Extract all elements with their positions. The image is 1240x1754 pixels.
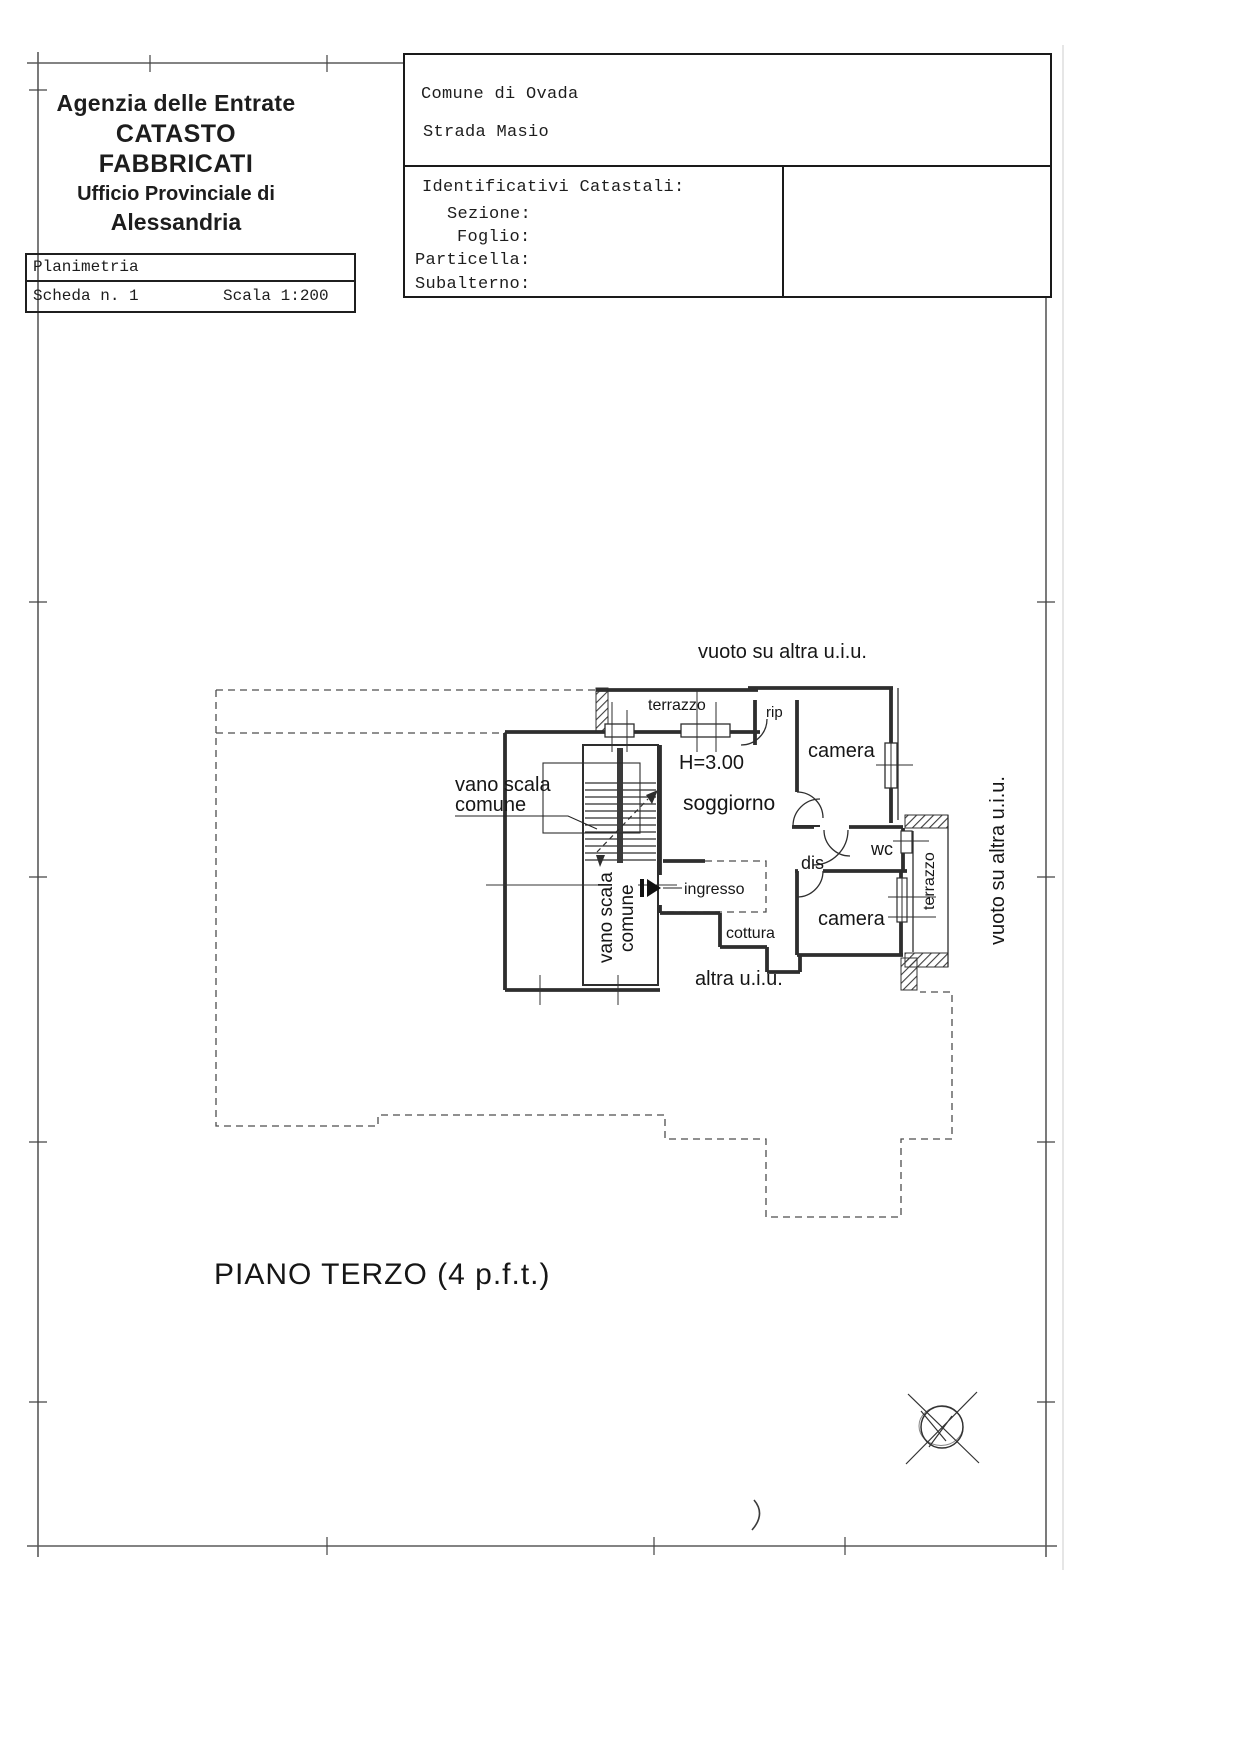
label-vuoto-top: vuoto su altra u.i.u.	[698, 641, 867, 663]
label-cottura: cottura	[726, 925, 775, 942]
stamp-cross-circle	[906, 1392, 979, 1464]
agency-register-title: CATASTO FABBRICATI	[40, 120, 312, 179]
entrance-marker	[640, 879, 682, 897]
street-line: Strada Masio	[423, 123, 549, 142]
label-vano-scala-vertical-line1: vano scala	[596, 872, 617, 963]
cadastral-floorplan-sheet: vuoto su altra u.i.u. terrazzo rip camer…	[0, 0, 1240, 1754]
agency-name: Agenzia delle Entrate	[40, 90, 312, 117]
label-vano-scala-vertical-line2: comune	[617, 884, 638, 952]
label-height: H=3.00	[679, 752, 744, 774]
planimetria-sheet-row: Scheda n. 1 Scala 1:200	[27, 282, 354, 313]
field-sezione: Sezione:	[447, 205, 531, 224]
field-subalterno: Subalterno:	[415, 275, 531, 294]
planimetria-card: Planimetria Scheda n. 1 Scala 1:200	[25, 253, 356, 313]
sheet-number: Scheda n. 1	[33, 287, 139, 305]
label-vano-scala-line2: comune	[455, 794, 526, 816]
pen-mark	[752, 1500, 760, 1530]
label-rip: rip	[766, 704, 783, 721]
agency-province: Alessandria	[40, 209, 312, 236]
label-terrazzo-top: terrazzo	[648, 697, 706, 714]
planimetria-title-row: Planimetria	[27, 255, 354, 282]
info-box-vertical-divider	[782, 167, 784, 296]
label-camera-bottom: camera	[818, 908, 886, 930]
comune-line: Comune di Ovada	[421, 85, 579, 104]
location-section: Comune di Ovada Strada Masio	[405, 55, 1050, 167]
floor-title: PIANO TERZO (4 p.f.t.)	[214, 1258, 551, 1291]
field-foglio: Foglio:	[457, 228, 531, 247]
field-particella: Particella:	[415, 251, 531, 270]
planimetria-title: Planimetria	[33, 258, 139, 276]
label-dis: dis	[801, 853, 824, 873]
label-vuoto-right: vuoto su altra u.i.u.	[987, 776, 1009, 945]
vano-scala-leader-line	[455, 816, 597, 829]
label-altra-uiu: altra u.i.u.	[695, 968, 783, 990]
label-wc: wc	[870, 839, 893, 859]
plan-tick-marks	[486, 885, 677, 1005]
label-terrazzo-right: terrazzo	[921, 852, 938, 910]
identifiers-title: Identificativi Catastali:	[422, 178, 685, 197]
label-ingresso: ingresso	[684, 881, 745, 898]
cadastral-info-box: Comune di Ovada Strada Masio Identificat…	[403, 53, 1052, 298]
drawing-scale: Scala 1:200	[223, 287, 329, 305]
agency-header: Agenzia delle Entrate CATASTO FABBRICATI…	[40, 90, 312, 236]
label-camera-top: camera	[808, 740, 876, 762]
agency-office-line: Ufficio Provinciale di	[40, 183, 312, 207]
label-soggiorno: soggiorno	[683, 792, 775, 815]
label-vano-scala-line1: vano scala	[455, 774, 551, 796]
